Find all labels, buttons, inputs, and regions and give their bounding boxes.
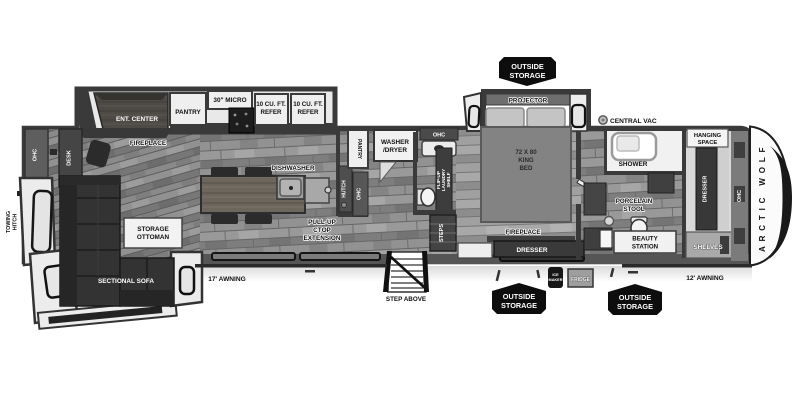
svg-text:REFER: REFER [298, 109, 320, 116]
svg-text:10 CU. FT.: 10 CU. FT. [293, 101, 323, 108]
svg-text:MAKER: MAKER [549, 278, 563, 282]
svg-text:OHC: OHC [33, 149, 39, 161]
svg-text:FIREPLACE: FIREPLACE [130, 140, 167, 147]
svg-text:SHOWER: SHOWER [619, 161, 648, 168]
svg-text:PANTRY: PANTRY [356, 139, 362, 160]
svg-text:DESK: DESK [67, 150, 73, 166]
svg-text:TOWING: TOWING [6, 211, 12, 233]
svg-text:SHELVES: SHELVES [693, 244, 723, 251]
svg-text:STOOL: STOOL [623, 206, 644, 213]
svg-text:STORAGE: STORAGE [617, 302, 653, 311]
svg-text:STORAGE: STORAGE [137, 226, 169, 233]
svg-text:STEP ABOVE: STEP ABOVE [386, 296, 426, 303]
svg-text:HUTCH: HUTCH [342, 180, 348, 198]
svg-text:DISHWASHER: DISHWASHER [271, 165, 315, 172]
svg-text:EXTENSION: EXTENSION [304, 235, 341, 242]
svg-text:OHC: OHC [433, 133, 445, 139]
svg-text:30" MICRO: 30" MICRO [213, 97, 246, 104]
svg-text:/DRYER: /DRYER [383, 147, 407, 154]
svg-text:FRIDGE: FRIDGE [571, 277, 591, 283]
svg-text:REFER: REFER [261, 109, 283, 116]
svg-text:CENTRAL VAC: CENTRAL VAC [610, 118, 657, 125]
svg-text:ENT. CENTER: ENT. CENTER [116, 116, 158, 123]
svg-text:OUTSIDE: OUTSIDE [503, 292, 536, 301]
svg-text:ARCTIC WOLF: ARCTIC WOLF [758, 146, 767, 252]
svg-text:OUTSIDE: OUTSIDE [619, 293, 652, 302]
svg-text:PROJECTOR: PROJECTOR [509, 98, 548, 105]
svg-text:WASHER: WASHER [381, 139, 409, 146]
svg-text:OHC: OHC [737, 190, 743, 202]
svg-text:OUTSIDE: OUTSIDE [511, 62, 544, 71]
svg-text:ICE: ICE [552, 273, 559, 277]
svg-text:KING: KING [518, 157, 534, 164]
svg-text:STEPS: STEPS [439, 224, 445, 242]
svg-text:12' AWNING: 12' AWNING [686, 275, 724, 282]
svg-text:SECTIONAL SOFA: SECTIONAL SOFA [98, 278, 154, 285]
svg-text:DRESSER: DRESSER [517, 247, 548, 254]
svg-text:17' AWNING: 17' AWNING [208, 276, 246, 283]
svg-text:BED: BED [519, 165, 533, 172]
svg-text:OTTOMAN: OTTOMAN [137, 234, 170, 241]
svg-text:SPACE: SPACE [698, 140, 718, 146]
svg-text:STATION: STATION [632, 244, 659, 251]
svg-text:SHELF: SHELF [446, 172, 451, 187]
svg-text:FIREPLACE: FIREPLACE [505, 229, 540, 236]
svg-text:DRESSER: DRESSER [703, 176, 709, 203]
svg-text:CTOP: CTOP [313, 227, 331, 234]
svg-text:PANTRY: PANTRY [175, 109, 201, 116]
svg-text:STORAGE: STORAGE [501, 301, 537, 310]
svg-text:BEAUTY: BEAUTY [632, 236, 658, 243]
svg-text:HANGING: HANGING [694, 133, 722, 139]
svg-text:HITCH: HITCH [13, 214, 19, 231]
svg-text:PORCELAIN: PORCELAIN [616, 198, 653, 205]
svg-text:PULL-UP: PULL-UP [308, 219, 336, 226]
svg-text:72 X 80: 72 X 80 [515, 149, 537, 156]
svg-text:10 CU. FT.: 10 CU. FT. [256, 101, 286, 108]
svg-text:OHC: OHC [357, 188, 363, 200]
svg-text:STORAGE: STORAGE [510, 71, 546, 80]
